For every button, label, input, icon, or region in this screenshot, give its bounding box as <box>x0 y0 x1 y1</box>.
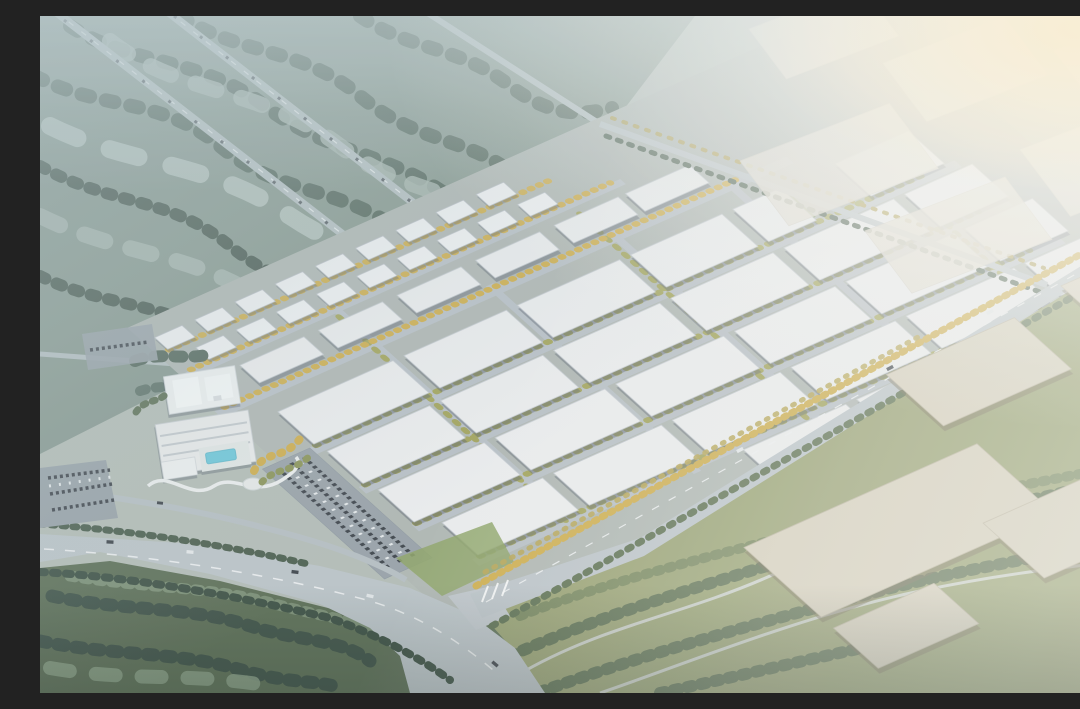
car <box>157 501 163 505</box>
car <box>186 550 193 554</box>
roof-slab <box>172 376 202 408</box>
aerial-render <box>40 16 1080 693</box>
car <box>106 540 113 544</box>
scene-canvas <box>40 16 1080 693</box>
